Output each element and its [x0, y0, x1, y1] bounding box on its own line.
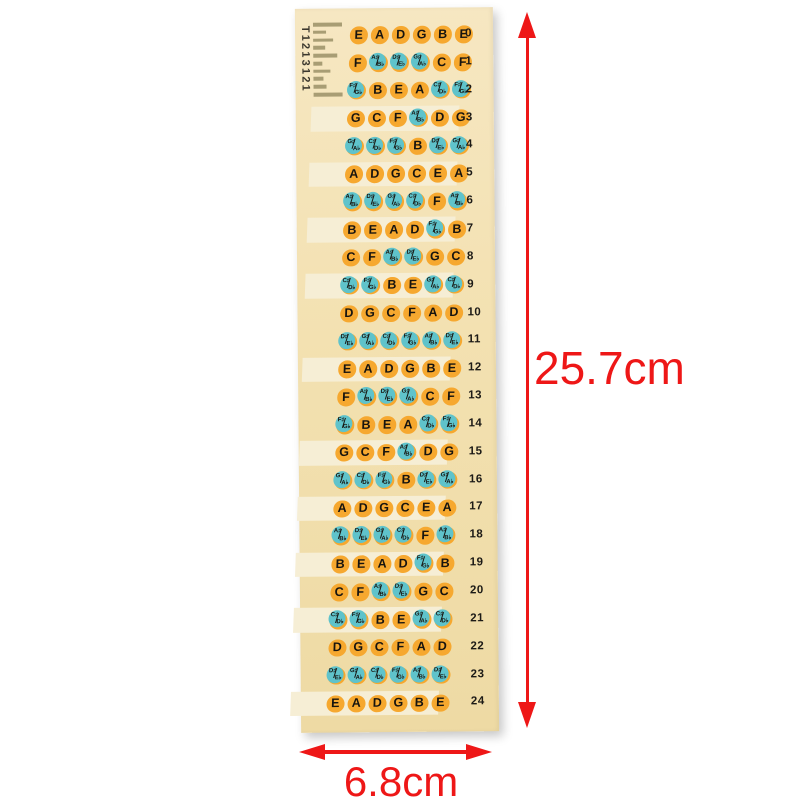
sticker-sheet: T1213121 EADGBEFA♯/B♭D♯/E♭G♯/A♭CFF♯/G♭BE…: [295, 7, 499, 733]
arrow-up-icon: [518, 12, 536, 38]
fret-number: 4: [466, 132, 492, 160]
fret-number: 10: [467, 299, 493, 327]
fret-number: 6: [466, 187, 492, 215]
width-dimension-label: 6.8cm: [325, 758, 477, 806]
fret-number: 5: [466, 159, 492, 187]
arrow-down-icon: [518, 702, 536, 728]
height-dimension-label: 25.7cm: [534, 342, 685, 395]
fret-number: 2: [465, 76, 491, 104]
fret-number: 0: [465, 20, 491, 48]
fret-number: 18: [469, 521, 495, 549]
fret-number: 7: [467, 215, 493, 243]
fret-number: 11: [468, 326, 494, 354]
fret-number: 24: [471, 689, 497, 717]
fret-number: 23: [471, 661, 497, 689]
width-dimension-line: [322, 750, 470, 754]
fret-number: 13: [468, 382, 494, 410]
fret-numbers: 0123456789101112131415161718192021222324: [295, 7, 499, 733]
fret-number: 15: [469, 438, 495, 466]
fret-number: 3: [466, 104, 492, 132]
fret-number: 20: [470, 577, 496, 605]
fret-number: 9: [467, 271, 493, 299]
fret-number: 17: [469, 494, 495, 522]
fret-number: 1: [465, 48, 491, 76]
height-dimension-line: [526, 34, 530, 702]
fret-number: 8: [467, 243, 493, 271]
fret-number: 22: [470, 633, 496, 661]
arrow-left-icon: [299, 744, 325, 760]
fret-number: 16: [469, 466, 495, 494]
fret-number: 12: [468, 354, 494, 382]
fret-number: 21: [470, 605, 496, 633]
fret-number: 19: [470, 549, 496, 577]
fret-number: 14: [468, 410, 494, 438]
